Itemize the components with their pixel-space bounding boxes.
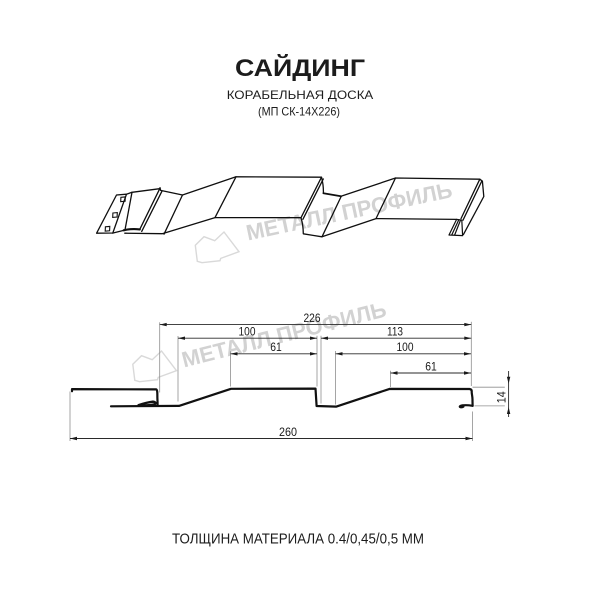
svg-text:61: 61 xyxy=(270,340,282,354)
svg-text:14: 14 xyxy=(495,391,509,403)
svg-text:100: 100 xyxy=(239,324,256,338)
svg-text:100: 100 xyxy=(397,340,414,354)
svg-text:226: 226 xyxy=(304,311,321,325)
svg-text:ТОЛЩИНА МАТЕРИАЛА 0.4/0,45/0,5: ТОЛЩИНА МАТЕРИАЛА 0.4/0,45/0,5 ММ xyxy=(172,531,424,547)
svg-text:260: 260 xyxy=(279,425,297,439)
svg-text:61: 61 xyxy=(425,359,437,373)
svg-text:САЙДИНГ: САЙДИНГ xyxy=(235,54,365,82)
svg-text:113: 113 xyxy=(387,324,403,338)
svg-text:(МП СК-14Х226): (МП СК-14Х226) xyxy=(258,105,340,119)
svg-text:КОРАБЕЛЬНАЯ ДОСКА: КОРАБЕЛЬНАЯ ДОСКА xyxy=(227,88,374,102)
